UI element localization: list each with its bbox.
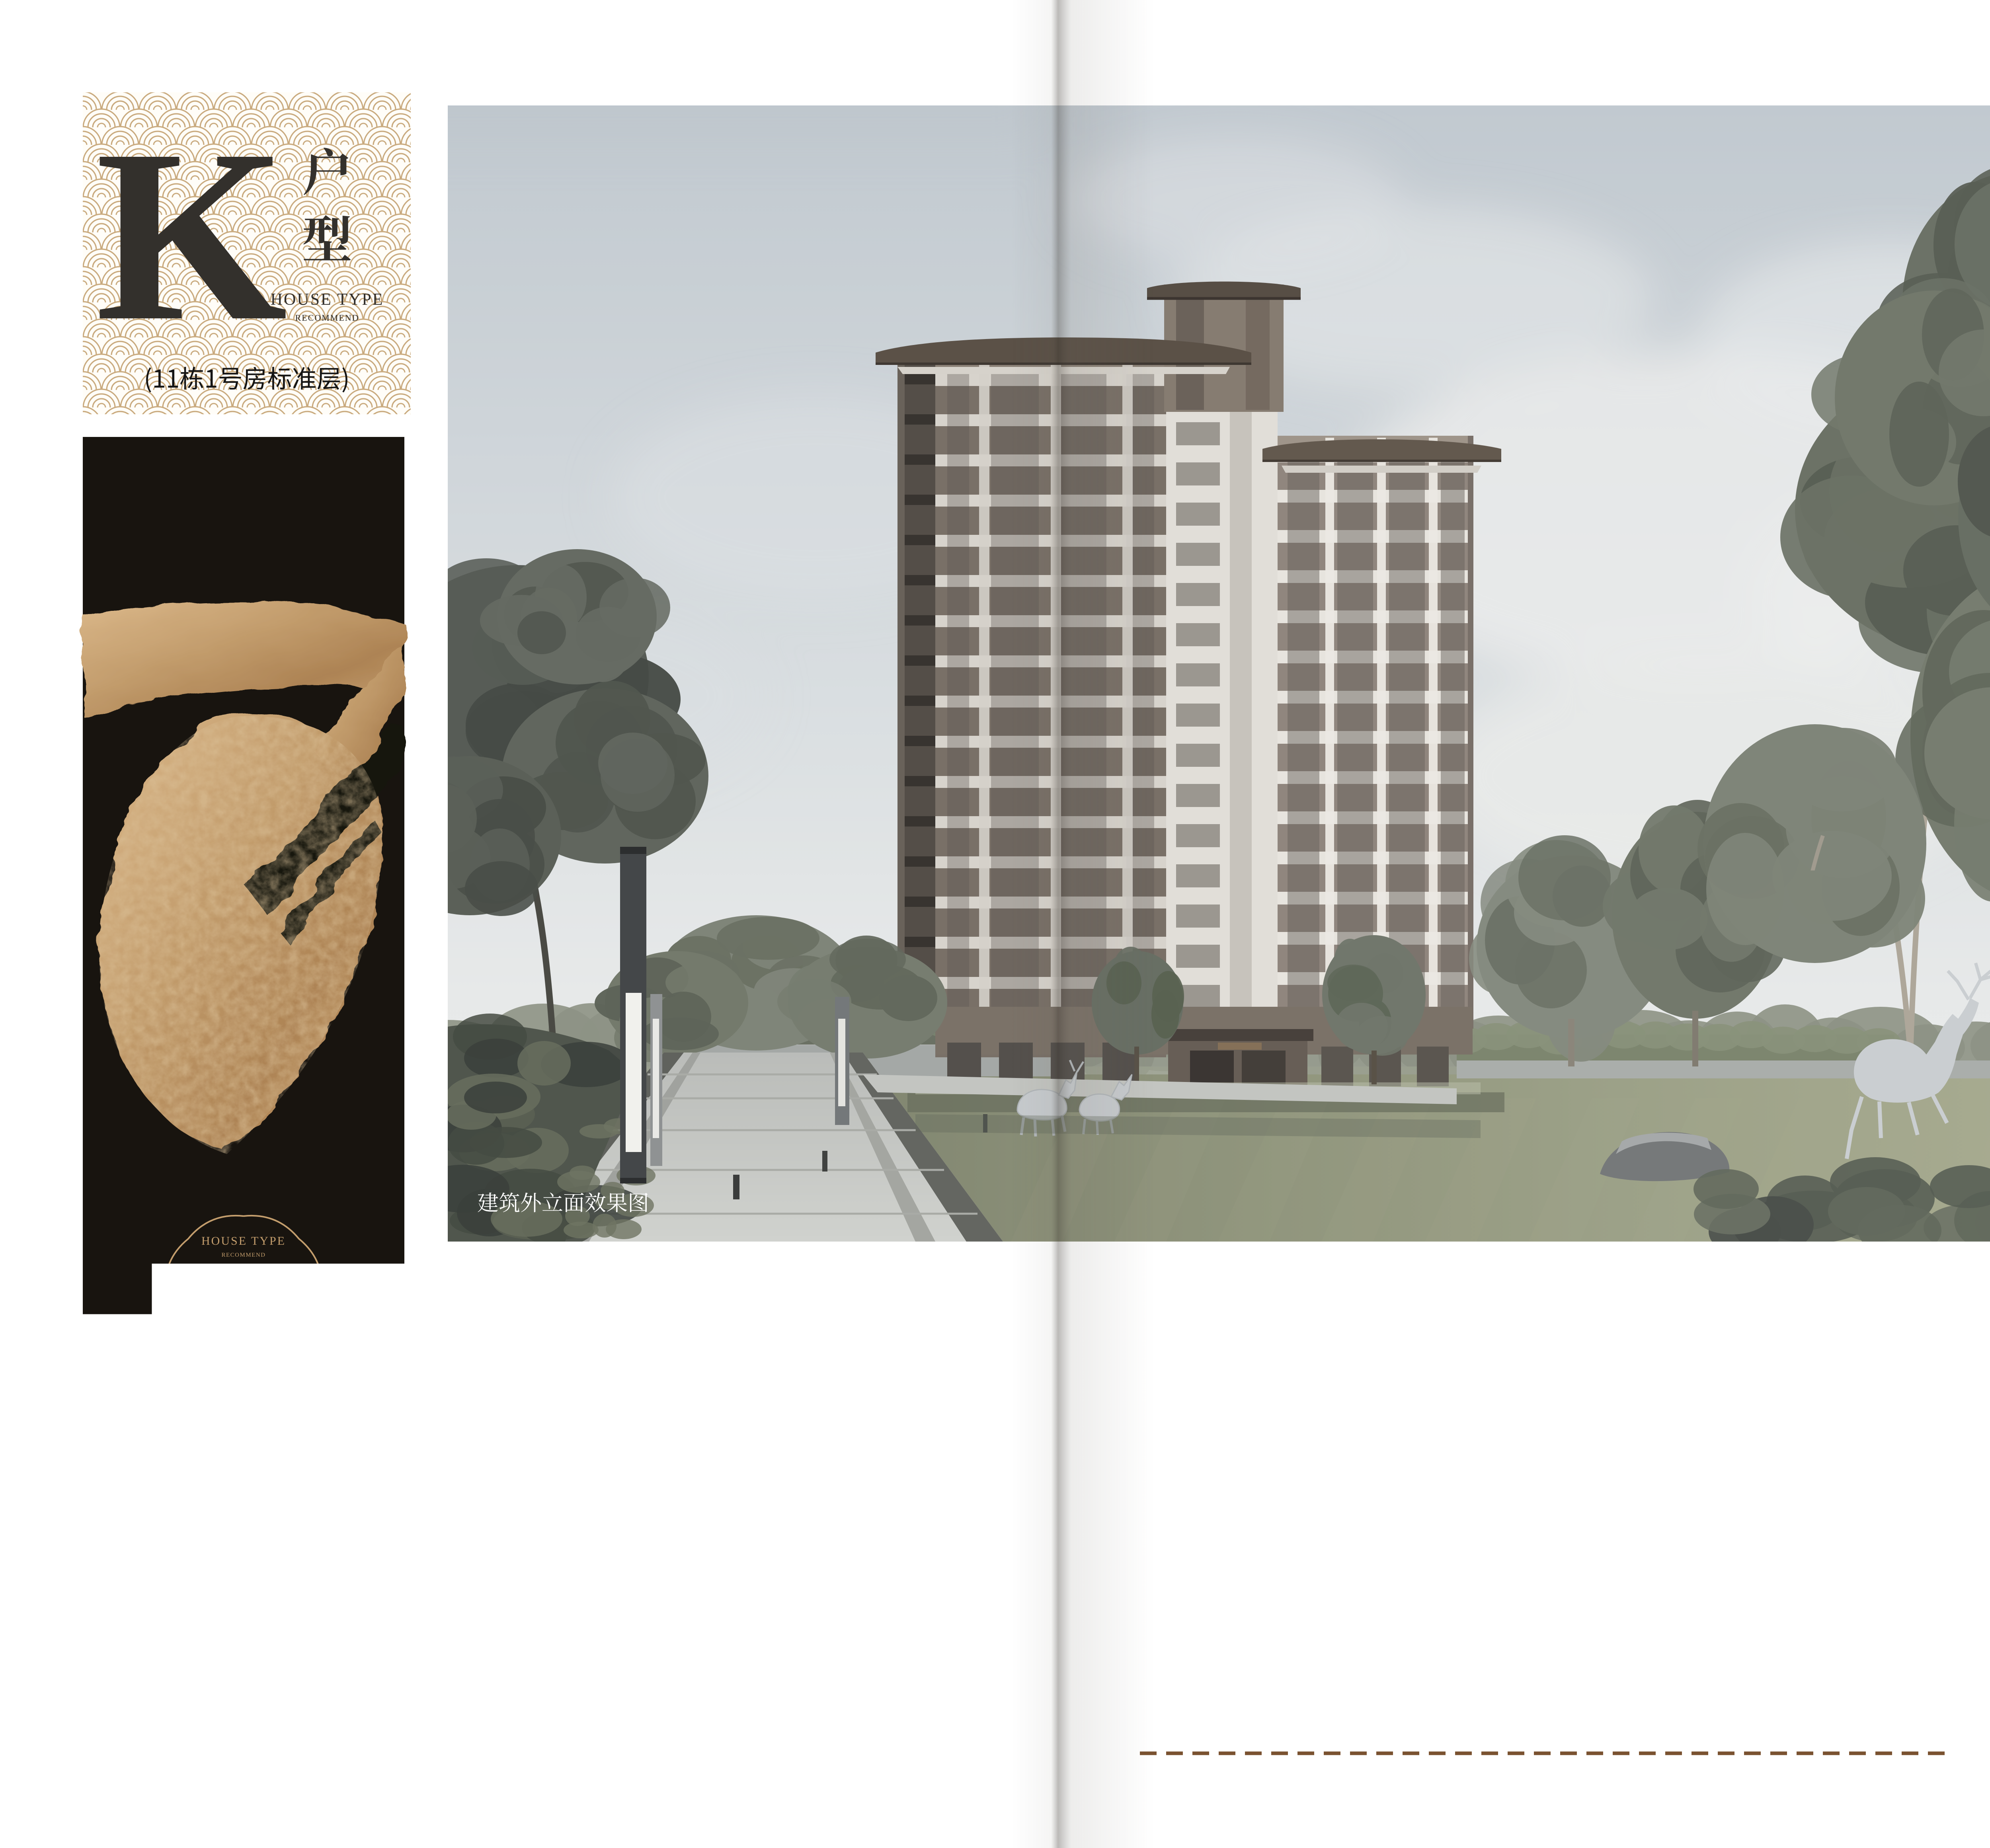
svg-text:HOUSE TYPE: HOUSE TYPE bbox=[271, 290, 384, 309]
svg-text:247.96m: 247.96m bbox=[642, 1482, 878, 1614]
svg-text:TOP OF CHUANGJIA: TOP OF CHUANGJIA bbox=[164, 1616, 330, 1633]
svg-text:I AM HERE: I AM HERE bbox=[911, 1728, 990, 1743]
svg-text:HOUSE TYPE: HOUSE TYPE bbox=[665, 1420, 788, 1441]
svg-text:11: 11 bbox=[185, 1262, 256, 1343]
svg-text:K: K bbox=[96, 99, 288, 372]
svg-text:TOP OF CHUANGJIA: TOP OF CHUANGJIA bbox=[471, 1335, 1021, 1401]
svg-text:I AM HERE: I AM HERE bbox=[1455, 1729, 1534, 1744]
svg-text:RECOMMEND: RECOMMEND bbox=[1322, 1376, 1388, 1386]
svg-text:WITH PEACE IN MY HEART: WITH PEACE IN MY HEART bbox=[466, 1728, 666, 1743]
svg-text:WITH PEACE IN MY HEART: WITH PEACE IN MY HEART bbox=[164, 1645, 330, 1657]
svg-text:2: 2 bbox=[925, 1470, 938, 1523]
svg-text:RECOMMEND: RECOMMEND bbox=[295, 313, 359, 323]
svg-text:HUAN: HUAN bbox=[214, 1547, 280, 1567]
svg-text:WITH PEACE IN MY HEART: WITH PEACE IN MY HEART bbox=[1140, 1729, 1340, 1744]
svg-text:RECOMMEND: RECOMMEND bbox=[221, 1252, 265, 1258]
svg-text:I AM HERE: I AM HERE bbox=[214, 1663, 280, 1675]
svg-text:HOUSE TYPE: HOUSE TYPE bbox=[1321, 1352, 1449, 1373]
svg-text:RECOMMEND: RECOMMEND bbox=[693, 1441, 760, 1451]
svg-text:HOUSE TYPE: HOUSE TYPE bbox=[201, 1234, 286, 1248]
